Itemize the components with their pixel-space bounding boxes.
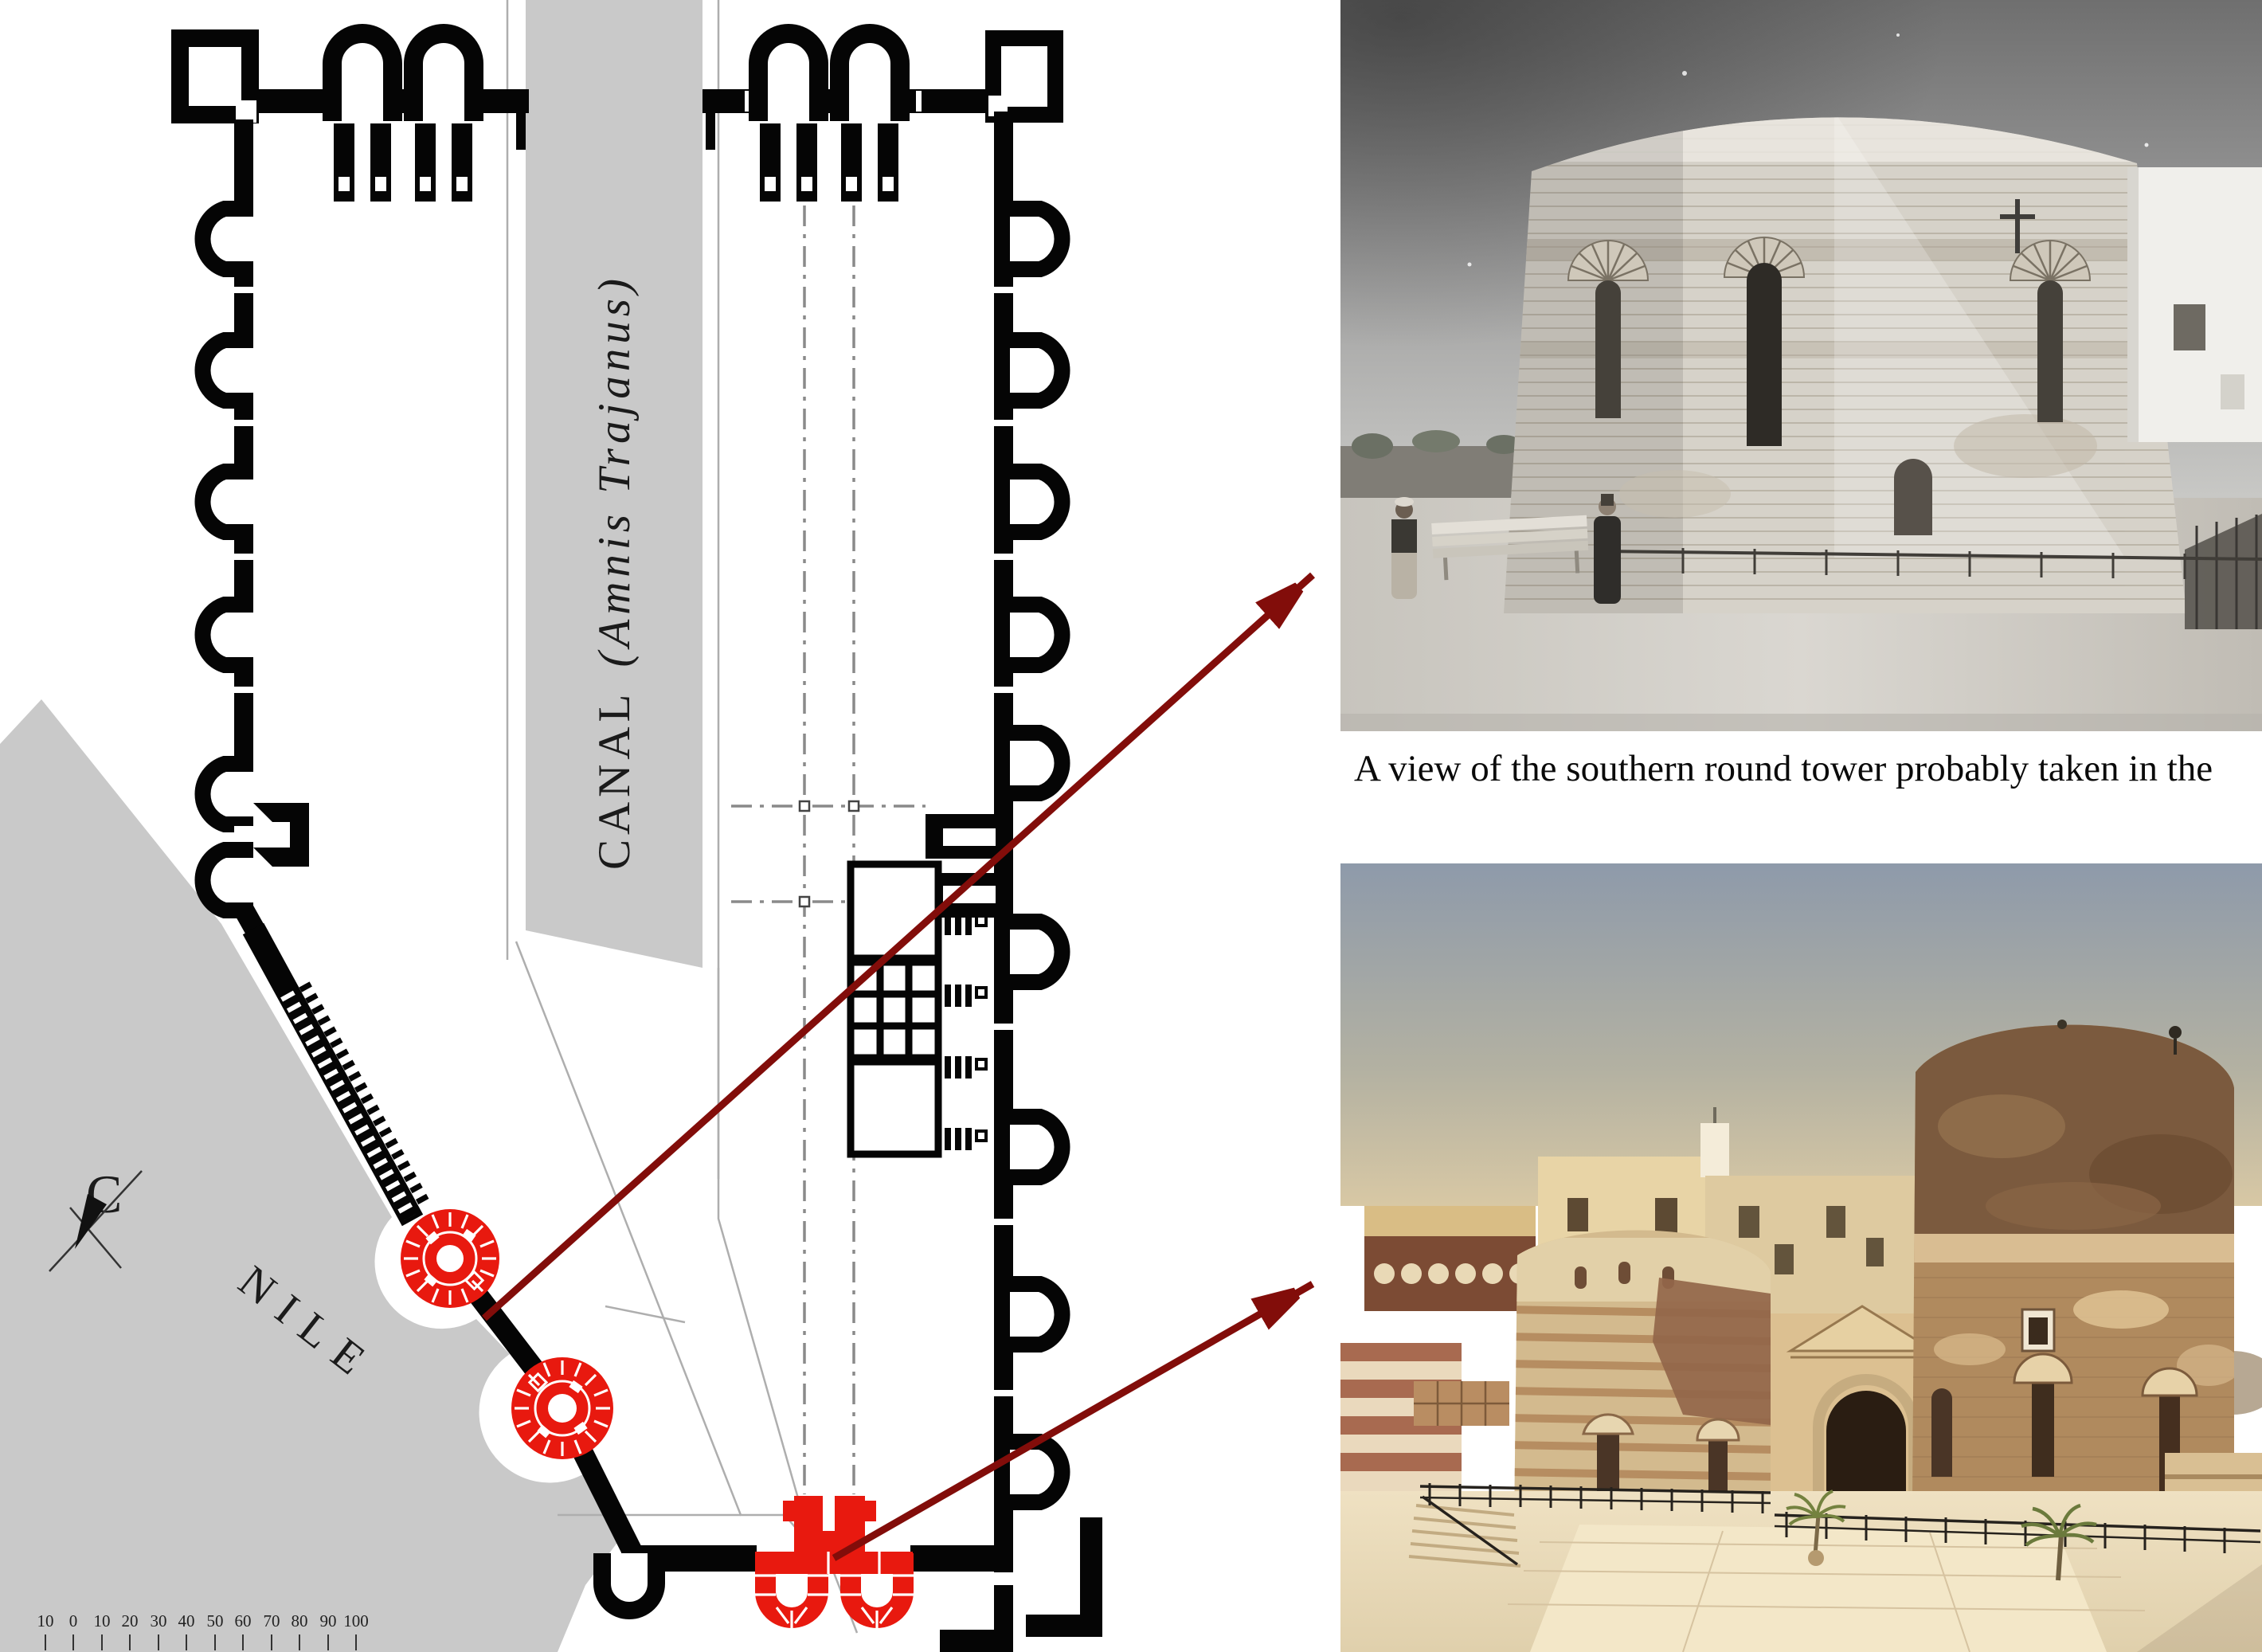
svg-text:80: 80 (292, 1611, 308, 1630)
fortress-plan: CANAL (Amnis Trajanus) NILE C 10 0 10 20… (0, 0, 1340, 1652)
street-axes (731, 206, 926, 1494)
svg-text:0: 0 (69, 1611, 78, 1630)
background-wall (1340, 430, 1540, 508)
striped-ablaq-wall (1340, 1343, 1509, 1491)
svg-text:50: 50 (207, 1611, 224, 1630)
inner-buildings (851, 864, 938, 1154)
left-round-tower (1508, 1230, 1779, 1525)
svg-text:10: 10 (37, 1611, 54, 1630)
canal-label-latin: (Amnis Trajanus) (589, 274, 640, 667)
canal-label: CANAL (Amnis Trajanus) (589, 274, 640, 870)
round-tower-north (401, 1209, 499, 1308)
modern-fortress-photo (1340, 863, 2262, 1652)
svg-text:40: 40 (178, 1611, 195, 1630)
figure-page: CANAL (Amnis Trajanus) NILE C 10 0 10 20… (0, 0, 2262, 1652)
canal-label-name: CANAL (589, 675, 640, 870)
west-bastions (202, 209, 309, 910)
round-tower-south (511, 1357, 613, 1459)
base-arch (1894, 459, 1932, 535)
stair-glyphs (945, 913, 986, 1150)
svg-text:90: 90 (320, 1611, 337, 1630)
svg-text:30: 30 (151, 1611, 167, 1630)
east-bastions (1010, 209, 1063, 1502)
svg-text:CANAL (Amnis Trajanus): CANAL (Amnis Trajanus) (589, 274, 640, 870)
courtyard (1340, 1483, 2262, 1652)
svg-text:70: 70 (264, 1611, 280, 1630)
svg-text:100: 100 (343, 1611, 369, 1630)
historic-round-tower-photo (1340, 0, 2262, 731)
svg-text:60: 60 (235, 1611, 252, 1630)
svg-text:20: 20 (122, 1611, 139, 1630)
photo-caption: A view of the southern round tower proba… (1354, 747, 2262, 790)
svg-text:10: 10 (94, 1611, 111, 1630)
white-building (2127, 167, 2262, 442)
right-round-tower (1898, 1007, 2248, 1501)
